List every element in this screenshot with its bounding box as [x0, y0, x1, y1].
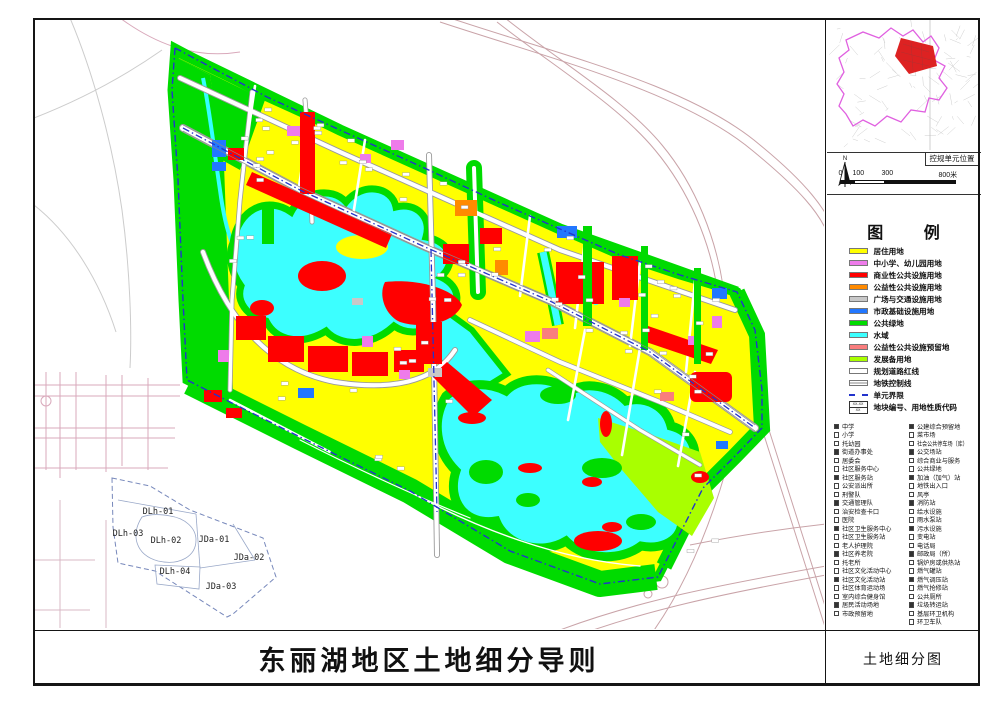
legend-panel: 图 例 居住用地中小学、幼儿园用地商业性公共设施用地公益性公共设施用地广场与交通…: [827, 195, 981, 630]
legend-symbol-icon: [834, 577, 840, 583]
legend-symbol-item: 地铁出入口: [909, 482, 984, 491]
legend-symbol-icon: [834, 432, 840, 438]
legend-symbol-item: 居委会: [834, 456, 909, 465]
legend-symbol-icon: [834, 602, 840, 608]
legend-swatch-icon: [849, 356, 868, 363]
legend-item-label: 地铁控制线: [874, 378, 912, 389]
legend-symbol-icon: [834, 526, 840, 532]
legend-item-label: 居住用地: [874, 246, 904, 257]
symbol-legend-left-column: 中学小学托幼园街道办事处居委会社区服务中心社区服务站公安派出所刑警队交通管理队治…: [834, 422, 909, 626]
legend-symbol-item: 电话局: [909, 541, 984, 550]
legend-symbol-label: 环卫车队: [917, 617, 942, 626]
legend-swatch-icon: [849, 332, 868, 339]
legend-symbol-icon: [909, 492, 915, 498]
legend-symbol-item: 托老所: [834, 558, 909, 567]
title-band: 东丽湖地区土地细分导则 土地细分图: [33, 630, 980, 686]
sheet-drawing-title: 土地细分图: [825, 631, 980, 686]
legend-color-item: 单元界限: [849, 389, 981, 401]
legend-symbol-item: 污水设施: [909, 524, 984, 533]
legend-symbol-icon: [834, 585, 840, 591]
legend-swatch-icon: [849, 284, 868, 291]
color-legend-list: 居住用地中小学、幼儿园用地商业性公共设施用地公益性公共设施用地广场与交通设施用地…: [849, 245, 981, 413]
legend-item-label: 商业性公共设施用地: [874, 270, 942, 281]
legend-symbol-icon: [834, 492, 840, 498]
legend-symbol-icon: [909, 543, 915, 549]
legend-symbol-icon: [909, 458, 915, 464]
legend-symbol-icon: [834, 449, 840, 455]
legend-color-item: 公共绿地: [849, 317, 981, 329]
keyplan-unit-label: JDa-03: [206, 582, 237, 592]
legend-symbol-icon: [909, 526, 915, 532]
legend-symbol-item: 刑警队: [834, 490, 909, 499]
legend-symbol-icon: [834, 483, 840, 489]
keyplan-unit-label: DLh-04: [160, 567, 191, 577]
legend-swatch-icon: [849, 308, 868, 315]
legend-symbol-icon: [834, 424, 840, 430]
scale-bar: [840, 180, 956, 184]
legend-color-item: 中小学、幼儿园用地: [849, 257, 981, 269]
legend-symbol-label: 市政预留地: [842, 609, 873, 618]
scale-tick: 300: [882, 170, 894, 177]
legend-symbol-icon: [909, 500, 915, 506]
legend-item-label: 广场与交通设施用地: [874, 294, 942, 305]
legend-symbol-icon: [834, 551, 840, 557]
legend-symbol-icon: [909, 577, 915, 583]
legend-symbol-item: 社区养老院: [834, 550, 909, 559]
legend-symbol-item: 社区文化活动中心: [834, 567, 909, 576]
north-scale-block: N 0100300800米: [827, 152, 981, 195]
legend-symbol-item: 治安检查卡口: [834, 507, 909, 516]
legend-color-item: 地铁控制线: [849, 377, 981, 389]
legend-symbol-item: 公共绿地: [909, 465, 984, 474]
legend-symbol-item: 社区卫生服务站: [834, 533, 909, 542]
legend-symbol-item: 社会公共停车场（库）: [909, 439, 984, 448]
legend-symbol-icon: [909, 611, 915, 617]
legend-symbol-item: 燃气抢修站: [909, 584, 984, 593]
legend-symbol-item: 公交场站: [909, 448, 984, 457]
legend-symbol-item: 社区服务站: [834, 473, 909, 482]
legend-symbol-icon: [909, 594, 915, 600]
legend-symbol-item: 变电站: [909, 533, 984, 542]
legend-symbol-icon: [834, 500, 840, 506]
legend-symbol-item: 加油（加气）站: [909, 473, 984, 482]
scale-tick: 800米: [939, 170, 958, 180]
legend-color-item: 公益性公共设施预留地: [849, 341, 981, 353]
keyplan-unit-label: DLh-02: [151, 536, 182, 546]
legend-symbol-item: 公建综合预留地: [909, 422, 984, 431]
legend-item-label: 地块编号、用地性质代码: [874, 402, 958, 413]
keyplan-unit-label: JDa-01: [199, 535, 230, 545]
legend-symbol-icon: [834, 466, 840, 472]
legend-symbol-icon: [909, 449, 915, 455]
legend-symbol-item: 公安派出所: [834, 482, 909, 491]
legend-symbol-icon: [909, 551, 915, 557]
legend-symbol-icon: [834, 611, 840, 617]
legend-symbol-icon: [909, 509, 915, 515]
plan-sheet: DLh-01DLh-03DLh-02JDa-01JDa-02DLh-04JDa-…: [0, 0, 999, 706]
legend-item-label: 规划道路红线: [874, 366, 920, 377]
legend-color-item: 居住用地: [849, 245, 981, 257]
panel-divider: [825, 18, 826, 686]
legend-symbol-icon: [834, 517, 840, 523]
legend-symbol-item: 给水设施: [909, 507, 984, 516]
legend-swatch-icon: [849, 344, 868, 351]
legend-color-item: XX-XXXX地块编号、用地性质代码: [849, 401, 981, 413]
legend-item-label: 单元界限: [874, 390, 904, 401]
legend-symbol-icon: [909, 534, 915, 540]
legend-symbol-item: 室内综合健身馆: [834, 592, 909, 601]
legend-symbol-icon: [909, 466, 915, 472]
legend-symbol-item: 街道办事处: [834, 448, 909, 457]
legend-symbol-item: 小学: [834, 431, 909, 440]
legend-symbol-item: 托幼园: [834, 439, 909, 448]
legend-symbol-item: 中学: [834, 422, 909, 431]
keyplan-inset: DLh-01DLh-03DLh-02JDa-01JDa-02DLh-04JDa-…: [112, 478, 276, 617]
legend-symbol-item: 燃气调压站: [909, 575, 984, 584]
scale-tick: 0: [839, 170, 843, 177]
side-panel: 控规单元位置 N 0100300800米 图 例 居住用地中小学、幼儿园用地商业…: [827, 18, 981, 630]
legend-item-label: 公共绿地: [874, 318, 904, 329]
legend-item-label: 市政基础设施用地: [874, 306, 935, 317]
legend-swatch-icon: [849, 320, 868, 327]
legend-symbol-item: 综合商业与服务: [909, 456, 984, 465]
legend-symbol-icon: [909, 585, 915, 591]
sheet-main-title: 东丽湖地区土地细分导则: [33, 631, 825, 686]
legend-symbol-icon: [834, 509, 840, 515]
legend-swatch-icon: [849, 272, 868, 279]
legend-symbol-item: 垃圾转运站: [909, 601, 984, 610]
legend-symbol-item: 社区体育运动场: [834, 584, 909, 593]
legend-symbol-label: 社会公共停车场（库）: [917, 439, 968, 448]
legend-symbol-icon: [834, 560, 840, 566]
legend-swatch-icon: [849, 394, 868, 396]
legend-symbol-item: 风亭: [909, 490, 984, 499]
keyplan-unit-label: JDa-02: [234, 553, 265, 563]
legend-symbol-icon: [834, 534, 840, 540]
legend-symbol-icon: [909, 517, 915, 523]
legend-symbol-icon: [834, 568, 840, 574]
legend-symbol-item: 居民活动场地: [834, 601, 909, 610]
legend-symbol-item: 交通管理队: [834, 499, 909, 508]
legend-color-item: 广场与交通设施用地: [849, 293, 981, 305]
legend-symbol-icon: [909, 568, 915, 574]
legend-color-item: 水域: [849, 329, 981, 341]
legend-item-label: 水域: [874, 330, 889, 341]
legend-symbol-item: 医院: [834, 516, 909, 525]
legend-color-item: 商业性公共设施用地: [849, 269, 981, 281]
legend-swatch-icon: [849, 296, 868, 303]
symbol-legend: 中学小学托幼园街道办事处居委会社区服务中心社区服务站公安派出所刑警队交通管理队治…: [834, 422, 984, 626]
legend-color-item: 规划道路红线: [849, 365, 981, 377]
legend-symbol-icon: [909, 483, 915, 489]
svg-text:N: N: [842, 156, 846, 162]
legend-symbol-item: 邮政局（所）: [909, 550, 984, 559]
legend-color-item: 发展备用地: [849, 353, 981, 365]
legend-symbol-item: 雨水泵站: [909, 516, 984, 525]
legend-color-item: 公益性公共设施用地: [849, 281, 981, 293]
legend-swatch-icon: [849, 248, 868, 255]
symbol-legend-right-column: 公建综合预留地菜市场社会公共停车场（库）公交场站综合商业与服务公共绿地加油（加气…: [909, 422, 984, 626]
legend-symbol-item: 环卫车队: [909, 618, 984, 627]
legend-symbol-item: 燃气罐站: [909, 567, 984, 576]
legend-item-label: 发展备用地: [874, 354, 912, 365]
legend-symbol-item: 公共厕所: [909, 592, 984, 601]
legend-color-item: 市政基础设施用地: [849, 305, 981, 317]
legend-symbol-item: 老人护理院: [834, 541, 909, 550]
legend-symbol-icon: [834, 458, 840, 464]
legend-item-label: 公益性公共设施预留地: [874, 342, 950, 353]
scale-tick-labels: 0100300800米: [827, 170, 981, 178]
legend-symbol-item: 市政预留地: [834, 609, 909, 618]
legend-swatch-icon: [849, 260, 868, 267]
legend-symbol-icon: [909, 424, 915, 430]
legend-symbol-item: 消防站: [909, 499, 984, 508]
legend-symbol-icon: [909, 619, 915, 625]
legend-title: 图 例: [827, 219, 981, 243]
parcel-code-sample: XX-XXXX: [849, 401, 868, 414]
legend-symbol-icon: [834, 594, 840, 600]
keyplan-unit-label: DLh-03: [113, 529, 144, 539]
legend-symbol-icon: [909, 441, 915, 447]
location-inset-map: [827, 18, 981, 153]
legend-symbol-icon: [909, 475, 915, 481]
scale-tick: 100: [853, 170, 865, 177]
legend-symbol-item: 基层环卫机构: [909, 609, 984, 618]
legend-symbol-item: 社区卫生服务中心: [834, 524, 909, 533]
legend-swatch-icon: [849, 380, 868, 387]
legend-symbol-icon: [834, 441, 840, 447]
legend-symbol-icon: [909, 602, 915, 608]
legend-symbol-item: 菜市场: [909, 431, 984, 440]
keyplan-unit-label: DLh-01: [143, 507, 174, 517]
legend-symbol-item: 锅炉房或供热站: [909, 558, 984, 567]
legend-symbol-icon: [909, 560, 915, 566]
legend-symbol-item: 社区文化活动站: [834, 575, 909, 584]
legend-swatch-icon: [849, 368, 868, 375]
legend-symbol-icon: [834, 475, 840, 481]
legend-symbol-icon: [909, 432, 915, 438]
legend-item-label: 公益性公共设施用地: [874, 282, 942, 293]
legend-symbol-icon: [834, 543, 840, 549]
legend-symbol-item: 社区服务中心: [834, 465, 909, 474]
legend-item-label: 中小学、幼儿园用地: [874, 258, 942, 269]
